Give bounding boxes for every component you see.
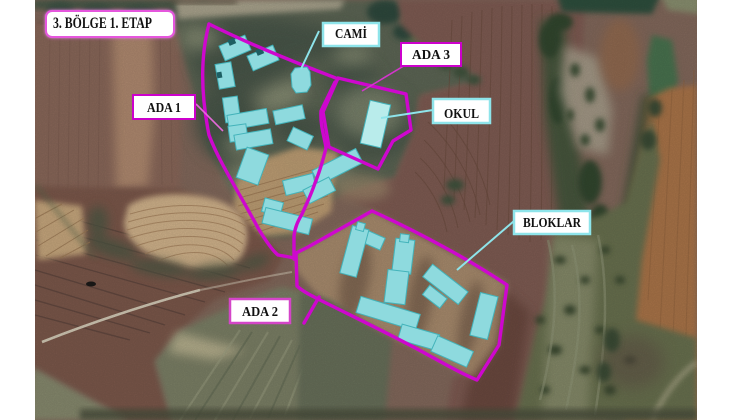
svg-text:ADA 2: ADA 2	[242, 305, 278, 320]
svg-text:3. BÖLGE 1. ETAP: 3. BÖLGE 1. ETAP	[53, 15, 152, 32]
svg-text:OKUL: OKUL	[444, 107, 479, 122]
svg-text:ADA 1: ADA 1	[147, 101, 181, 116]
svg-text:BLOKLAR: BLOKLAR	[523, 216, 582, 231]
svg-text:CAMİ: CAMİ	[335, 25, 367, 42]
svg-text:ADA 3: ADA 3	[412, 48, 450, 63]
